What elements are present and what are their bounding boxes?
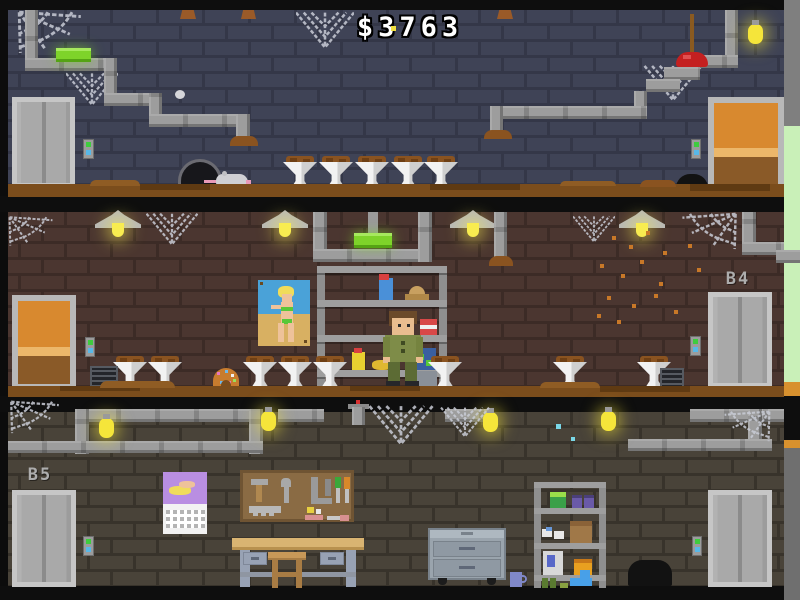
elevator-call-buttons[interactable] [83,139,94,159]
grow-pot[interactable] [278,356,312,390]
green-bottles [542,578,548,588]
wrench-icon [281,478,291,487]
tool-cabinet[interactable] [428,528,506,580]
sparkle-icon [391,26,396,31]
stool-bar [274,572,300,577]
dirt-mound [100,381,175,388]
pipe [776,250,800,263]
drawer-handle [459,547,475,550]
dirt-mound [489,256,513,266]
poster-bikini-top [281,307,293,311]
hand [416,357,423,363]
eye [398,324,401,327]
calendar [163,472,207,534]
ceiling-lamp-icon [450,210,496,240]
hat [409,286,425,294]
knife-handle [340,515,349,521]
saw-blade [249,506,281,513]
cabinet-wheel [487,578,496,585]
dirt-mound [540,382,600,388]
stool[interactable] [268,552,306,588]
pipe-cap [241,10,256,19]
light-bulb-icon [261,411,276,431]
spider-web-icon [716,410,778,442]
poster-pin [304,340,307,343]
pinup-poster [258,280,310,346]
spray-nozzle [379,274,389,280]
shelf-post [534,482,541,588]
dirt-mound [484,130,512,139]
game-viewport: $3763 [0,0,800,600]
drawer-handle [459,566,475,569]
edge-strip-dark [784,396,800,440]
supply-shelf[interactable] [534,482,606,588]
pipe-cap [497,10,513,19]
light-bulb-icon [99,418,114,438]
small-plants [560,583,568,588]
door-panel [714,103,778,185]
ceiling-lamp-icon [95,210,141,240]
wooden-door[interactable] [708,97,784,191]
dirt-patch [690,184,770,191]
worker-character[interactable] [383,311,427,387]
lamp-bulb [636,223,648,237]
poster-arm [271,305,281,309]
pipe-open-end [494,212,507,262]
door-panel [18,301,70,384]
drawer-handle [251,557,259,560]
cabinet-handle [461,532,473,535]
poster-leg [278,323,284,342]
elevator-doors[interactable] [12,97,75,188]
dirt-mound [230,136,258,146]
dirt-patch [350,386,420,391]
spider-web-icon [573,212,615,246]
pipe [646,79,680,92]
elevator-door-panels [713,297,767,383]
arm [383,337,390,359]
elevator-doors[interactable] [708,292,772,388]
pipe [278,409,324,422]
grow-pot[interactable] [243,356,277,390]
grow-pot[interactable] [313,356,347,390]
floor-label: B4 [718,269,758,289]
purple-jar [572,495,582,508]
pegboard-tools[interactable] [240,470,354,522]
screwdriver-shaft [345,489,349,503]
edge-strip-orange [784,440,800,448]
dirt-mound [640,180,676,187]
screwdriver-green [335,477,341,488]
arm [416,337,423,359]
light-switch[interactable] [85,337,95,357]
plunger-handle [690,14,694,56]
edge-strip-gray [784,0,800,126]
moth[interactable] [175,90,185,99]
sparkle-icon [571,437,575,441]
spore-dots [612,236,616,240]
pipe [313,249,432,262]
spray-can-cap [354,348,362,353]
green-box-lid [550,492,566,497]
pipe [418,212,432,262]
white-part [316,509,321,514]
drawer-handle [328,557,336,560]
spider-web-icon [680,212,738,250]
spider-web-icon [436,406,494,438]
white-box-label [547,555,555,567]
stool-seat [268,552,306,560]
pipe [8,441,263,453]
elevator-door-panels [713,495,767,582]
plunger-icon[interactable] [676,52,708,67]
dirt-mound [560,181,616,186]
elevator-door-panels [17,495,71,582]
floor-label: B5 [20,465,60,485]
lamp-bulb [112,223,124,237]
light-switch[interactable] [691,139,701,159]
light-bulb-icon [748,24,763,44]
poster-pin [260,282,263,285]
knife-blade [327,516,341,520]
elevator-call-buttons[interactable] [690,336,701,356]
calendar-grid [166,510,205,528]
dirt-patch [140,184,210,190]
ceiling-lamp-icon [619,210,665,240]
elevator-doors[interactable] [708,490,772,587]
spider-web-icon [146,212,198,246]
calendar-pinup-body [179,481,195,488]
blue-boot-foot [570,578,592,586]
hammer-handle [256,485,262,502]
shelf-board [534,482,606,488]
spray-can [352,352,365,370]
eye [407,324,410,327]
elevator-door-panels [17,102,70,183]
spider-web-icon [8,400,62,434]
pink-tool [305,515,323,520]
grow-lamp[interactable] [56,48,91,62]
cabinet-wheel [438,578,447,585]
bench-top [232,538,364,550]
face [392,318,414,335]
spider-web-icon [8,212,54,250]
elevator-call-buttons[interactable] [83,536,94,556]
trash-sack[interactable] [628,560,672,586]
plunger-highlight [683,55,691,59]
poster-leg [288,323,294,342]
screwdriver-shaft [336,488,340,503]
pants-leg [388,362,400,382]
jacket-button [401,341,405,345]
shelf-post [599,482,606,588]
mug-handle [521,575,527,583]
spray-bottle [379,278,393,300]
edge-strip-orange [784,382,800,396]
bench-leg [346,550,356,587]
grow-lamp[interactable] [354,233,392,248]
wrench-shaft [284,487,289,503]
wooden-door[interactable] [12,295,76,390]
square-ruler-arm [311,498,332,504]
dirt-patch [430,184,520,190]
money-counter: $3763 [330,12,490,42]
dirt-mound [90,180,140,186]
lamp-bulb [279,223,291,237]
purple-jar [584,495,594,508]
ceiling-lamp-icon [262,210,308,240]
bottom-floor-slab [0,586,800,600]
saw-teeth [253,513,258,516]
pipe [149,114,249,127]
shelf-board [317,300,447,307]
file-tool [325,479,331,496]
rat-ear [222,171,227,176]
ladybug [356,400,360,404]
shelf-board [534,508,606,514]
pipe-cap [180,10,196,19]
light-bulb-icon [601,411,616,431]
shelf-board [317,335,447,342]
spider-web-icon [364,404,438,446]
shoe-accent [546,527,552,531]
brown-box [570,521,592,543]
edge-strip-gray [784,448,800,600]
pants-leg [405,362,417,382]
elevator-doors[interactable] [12,490,76,587]
lamp-bulb [467,223,479,237]
jacket-button [401,349,405,353]
elevator-call-buttons[interactable] [692,536,702,556]
grow-pot[interactable] [428,356,462,390]
screwdriver-orange [344,477,350,489]
pipe [490,106,647,119]
sparkle-icon [556,424,561,429]
yellow-part [307,507,314,513]
hat-brim [405,294,429,300]
dirt-patch [600,386,690,392]
ceiling-bar [0,0,800,10]
mug[interactable] [510,570,528,587]
shelf-board [534,543,606,549]
shelf-board [317,266,447,273]
